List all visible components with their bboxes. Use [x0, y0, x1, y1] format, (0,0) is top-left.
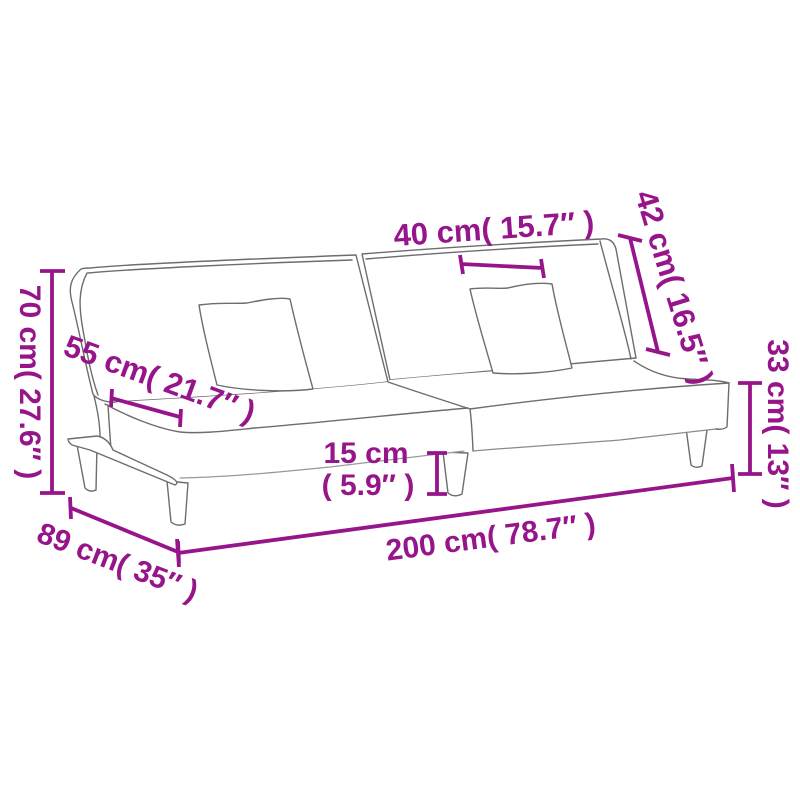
svg-text:( 5.9″ ): ( 5.9″ ): [322, 469, 415, 502]
svg-text:33 cm( 13″ ): 33 cm( 13″ ): [761, 339, 794, 508]
svg-text:70 cm( 27.6″ ): 70 cm( 27.6″ ): [13, 285, 46, 479]
svg-text:15 cm: 15 cm: [323, 437, 408, 470]
